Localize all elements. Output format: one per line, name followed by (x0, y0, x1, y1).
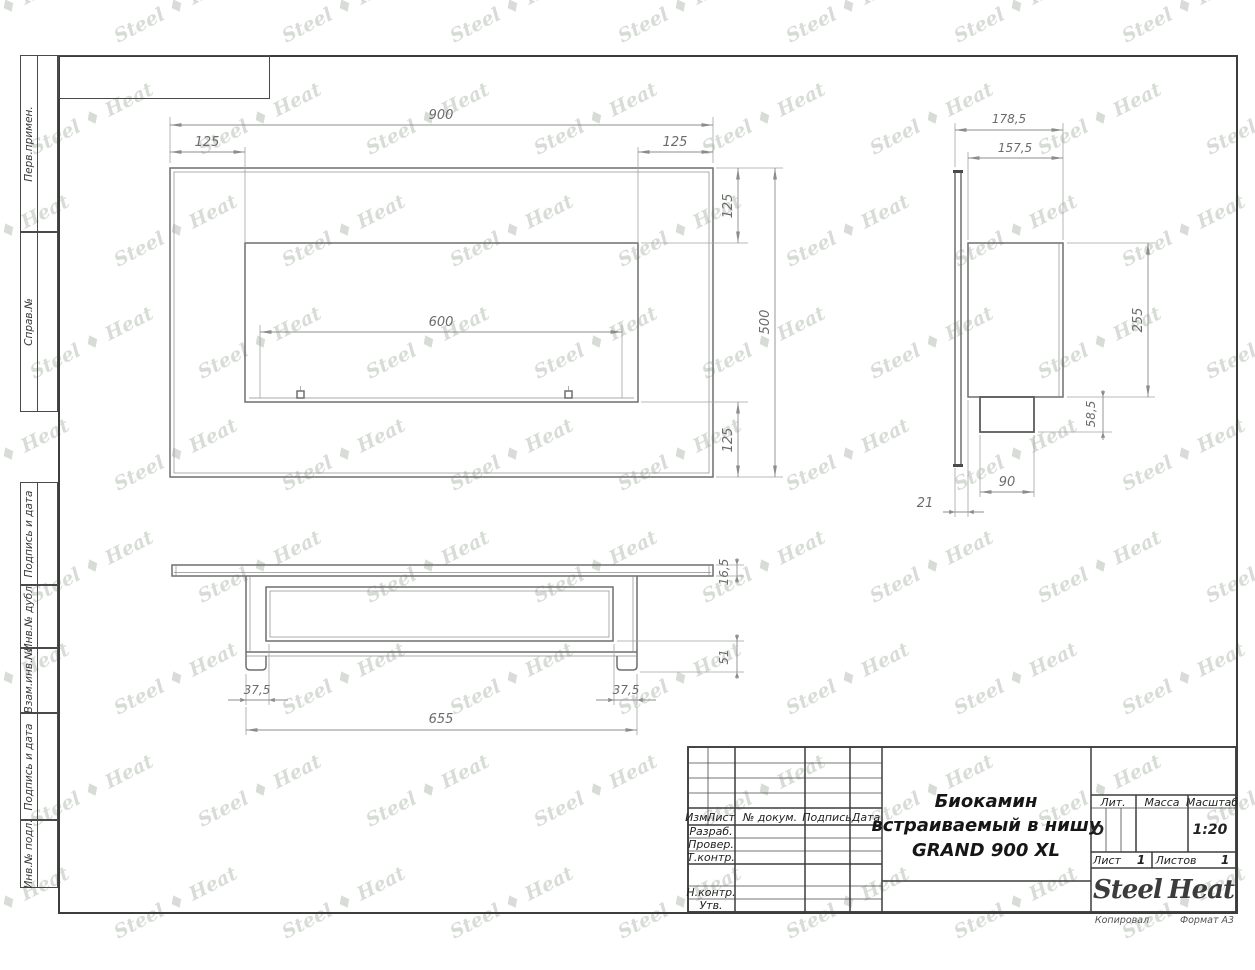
arrowhead (269, 698, 275, 702)
sheets-value: 1 (1221, 853, 1229, 867)
scale-value: 1:20 (1193, 822, 1228, 838)
dim-side-flange-offset: 21 (917, 496, 934, 511)
arrowhead (735, 576, 739, 582)
side-extension-lines (955, 123, 1155, 517)
logo-steel-text: Steel (1093, 875, 1162, 905)
arrowhead (735, 635, 739, 641)
arrowhead (637, 698, 643, 702)
dim-bottom-flange-thickness: 16,5 (717, 559, 731, 586)
bottom-body-outline (246, 576, 637, 656)
kopiroval-label: Копировал (1095, 915, 1149, 926)
arrowhead (1101, 391, 1105, 397)
title-block-columns (735, 747, 850, 912)
col-header-doc: № докум. (742, 811, 797, 824)
side-front-flange (955, 172, 961, 465)
bottom-opening-inner (270, 591, 609, 637)
dim-side-body-depth: 157,5 (998, 141, 1032, 155)
doc-title-line3: GRAND 900 XL (912, 840, 1060, 861)
steelheat-logo: Steel Heat (1093, 869, 1234, 911)
massa-label: Масса (1144, 796, 1179, 809)
row-razrab: Разраб. (689, 825, 732, 838)
row-tkontr: Т.контр. (687, 851, 735, 864)
side-view: 178,5 157,5 255 58,5 90 21 (917, 112, 1155, 517)
arrowhead (735, 672, 739, 678)
drawing-canvas: 900 125 125 600 125 500 125 178,5 157,5 … (0, 0, 1255, 970)
dim-bottom-depth: 51 (717, 649, 731, 664)
dim-side-total-depth: 178,5 (992, 112, 1026, 126)
arrowhead (949, 510, 955, 514)
arrowhead (1101, 432, 1105, 438)
sheets-label: Листов (1154, 854, 1196, 867)
dim-bottom-body-width: 655 (429, 712, 454, 727)
front-extension-lines (170, 117, 783, 477)
scale-label: Масштаб (1186, 796, 1238, 809)
dim-side-burner-depth: 90 (999, 475, 1016, 490)
bottom-extension-lines (246, 565, 744, 735)
sheet-label: Лист (1092, 854, 1121, 867)
burner-clip-right (565, 391, 572, 398)
dim-front-height: 500 (758, 310, 773, 335)
side-burner-box (980, 397, 1034, 432)
foot-right (617, 656, 637, 670)
doc-title-line2: встраиваемый в нишу (871, 815, 1102, 836)
dim-bottom-right-inset: 37,5 (613, 683, 640, 697)
bottom-body-fold (246, 576, 637, 656)
bar-fold-lines (174, 565, 711, 576)
dim-bottom-left-inset: 37,5 (244, 683, 271, 697)
dim-front-top-inset: 125 (721, 194, 736, 219)
dim-front-left-inset: 125 (195, 135, 220, 150)
arrowhead (240, 698, 246, 702)
dim-front-width: 900 (429, 108, 454, 123)
side-body (968, 243, 1063, 397)
logo-heat-text: Heat (1168, 875, 1234, 905)
row-nkontr: Н.контр. (686, 886, 735, 899)
col-header-list: Лист (706, 811, 735, 824)
dim-side-burner-height: 58,5 (1084, 401, 1098, 428)
bottom-front-panel-bar (172, 565, 713, 576)
bottom-opening-outer (266, 587, 613, 641)
row-utv: Утв. (699, 899, 722, 912)
arrowhead (968, 510, 974, 514)
dim-front-burner: 600 (429, 315, 454, 330)
foot-left (246, 656, 266, 670)
dim-side-body-height: 255 (1131, 308, 1146, 333)
drawing-sheet: { "margin_labels": ["Перв.примен.", "Спр… (0, 0, 1255, 970)
row-prover: Провер. (688, 838, 734, 851)
front-view: 900 125 125 600 125 500 125 (170, 108, 783, 477)
lit-value: О (1092, 823, 1104, 839)
dim-front-right-inset: 125 (663, 135, 688, 150)
col-header-podpis: Подпись (802, 811, 851, 824)
doc-title-line1: Биокамин (935, 791, 1038, 812)
lit-label: Лит. (1099, 796, 1125, 809)
format-label: Формат А3 (1180, 915, 1234, 926)
sheet-value: 1 (1137, 853, 1145, 867)
burner-clip-left (297, 391, 304, 398)
dim-front-bottom-inset: 125 (721, 428, 736, 453)
arrowhead (735, 559, 739, 565)
bottom-view: 16,5 51 37,5 37,5 655 (172, 558, 744, 735)
clip-stems (301, 386, 569, 391)
arrowhead (608, 698, 614, 702)
